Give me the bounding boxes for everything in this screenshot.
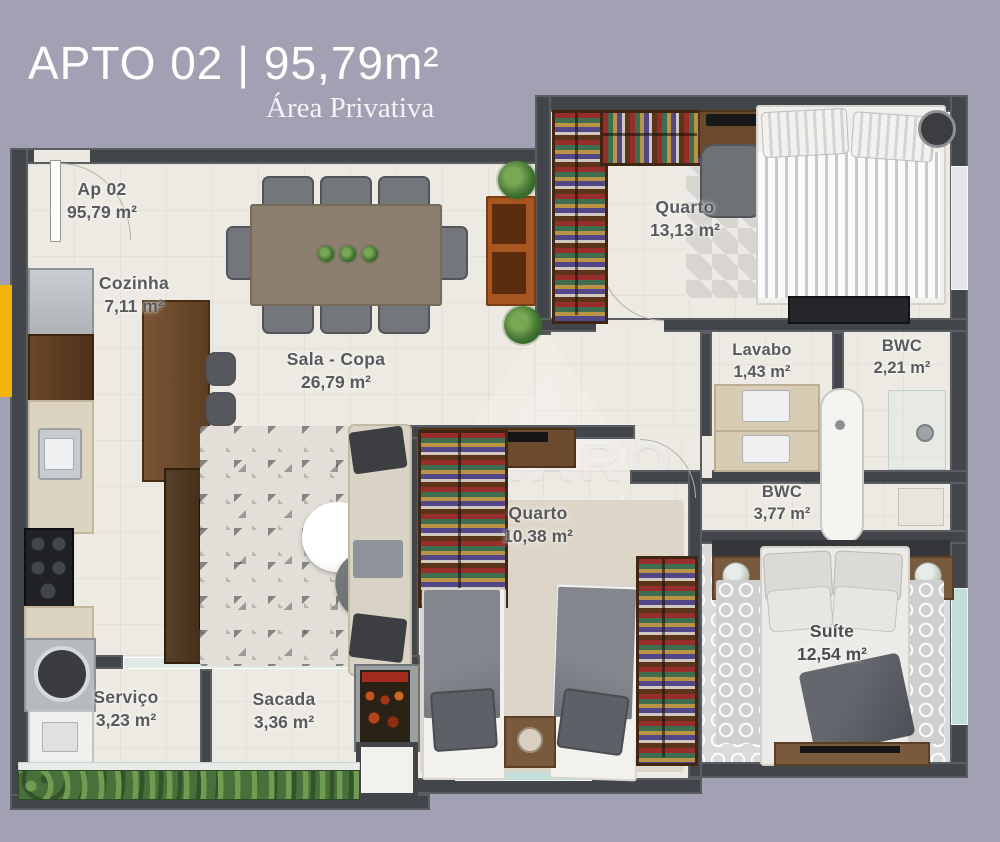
- bar-stool: [206, 392, 236, 426]
- wall-under-bath-b: [860, 470, 968, 484]
- quarto2-wardrobe-west: [418, 430, 508, 608]
- bathtub: [820, 388, 864, 544]
- kitchen-cabinet-wood: [28, 334, 94, 404]
- door-opening-entry: [34, 150, 90, 162]
- bathtub-drain: [835, 420, 845, 430]
- bedside-decor-round: [918, 110, 956, 148]
- wardrobe-rail: [575, 113, 578, 315]
- shower-head-icon: [916, 424, 934, 442]
- window-suite: [951, 588, 968, 725]
- quarto2-pillow: [556, 688, 630, 757]
- door-opening-quarto2: [637, 427, 695, 437]
- lavabo-sink: [742, 390, 790, 422]
- nightstand-lamp: [517, 727, 543, 753]
- kitchen-sink-basin: [44, 438, 74, 470]
- quarto1-wardrobe-top: [600, 110, 706, 166]
- quarto2-pillow: [430, 688, 498, 752]
- wardrobe-rail: [458, 433, 461, 599]
- fridge: [28, 268, 94, 338]
- accent-yellow-strip: [0, 285, 12, 397]
- desk-chair: [700, 144, 764, 218]
- suite-tv: [800, 746, 900, 753]
- table-plant: [318, 246, 334, 262]
- lavabo-sink: [742, 435, 790, 463]
- wardrobe-rail: [662, 559, 665, 757]
- sofa-throw-gray: [353, 540, 403, 578]
- servico-counter: [24, 606, 94, 642]
- sofa-pillow-dark: [348, 425, 407, 474]
- laundry-tank-basin: [42, 722, 78, 752]
- suite-pillow: [766, 585, 833, 632]
- page-title: APTO 02 | 95,79m²: [28, 36, 440, 90]
- wall-outer-top-left: [10, 148, 548, 164]
- quarto1-pillow: [761, 108, 849, 158]
- hutch-panel: [492, 204, 526, 244]
- corner-plant: [498, 161, 536, 199]
- planter-green: [18, 770, 360, 800]
- page-subtitle: Área Privativa: [266, 92, 434, 125]
- wall-living-hall: [535, 95, 551, 335]
- hutch-panel: [492, 252, 526, 294]
- wardrobe-rail: [603, 133, 697, 136]
- suite-pillow: [831, 585, 898, 632]
- corner-plant: [504, 306, 542, 344]
- quarto1-duvet-striped: [758, 152, 940, 298]
- door-opening-lavabo: [702, 436, 712, 478]
- window-quarto1: [951, 166, 968, 290]
- stove-cooktop: [24, 528, 74, 608]
- quarto2-wardrobe-east: [636, 556, 698, 766]
- shower-bench: [898, 488, 944, 526]
- quarto1-tv-console: [788, 296, 910, 324]
- sofa-pillow-dark: [349, 613, 408, 663]
- grill-label: [362, 672, 408, 682]
- floor-plan: TAVERNARO CONSULTORIA IMOBILIÁRIA: [0, 0, 1000, 842]
- bar-stool: [206, 352, 236, 386]
- table-plant: [362, 246, 378, 262]
- table-plant: [340, 246, 356, 262]
- light-shaft: [356, 742, 418, 798]
- washing-machine-drum: [34, 646, 90, 702]
